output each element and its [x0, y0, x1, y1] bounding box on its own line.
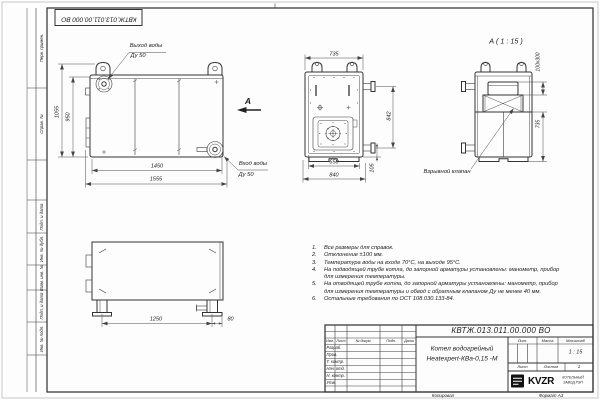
sheets-label: Листов — [544, 365, 559, 369]
footer-copied: Копировал — [432, 393, 454, 398]
front-markers — [317, 105, 351, 111]
inlet-dn-label: Ду 50 — [238, 173, 253, 179]
dim-valve-size: 100х300 — [537, 52, 542, 71]
note-item: 3.Температура воды на входе 70°С, на вых… — [311, 260, 563, 267]
product-name-line1: Котел водогрейный — [431, 347, 494, 354]
dim-width-top: 735 — [329, 52, 338, 58]
dim-edge-offset: 80 — [227, 317, 233, 323]
scale-label: Масштаб — [566, 339, 585, 343]
rear-flanges — [462, 82, 476, 154]
view-rear — [462, 62, 548, 169]
row-tkontr: Т. контр. — [327, 360, 345, 364]
side-column-label: Подп. и дата — [39, 203, 43, 230]
dim-width-overall: 840 — [329, 173, 338, 179]
dim-feet-spacing: 1250 — [150, 317, 162, 323]
dim-length-body: 1450 — [151, 164, 163, 170]
note-item: 1.Все размеры для справок. — [311, 245, 563, 252]
sheet-frame — [2, 2, 598, 398]
top-stamp-text: КВТЖ.013.011.00.000 ВО — [61, 14, 136, 21]
company-logo-mark — [511, 375, 524, 388]
explosion-valve-label: Взрывной клапан — [423, 170, 470, 176]
row-nkontr: Н. контр. — [327, 374, 345, 378]
water-inlet-valve — [197, 142, 223, 158]
section-letter: А — [245, 97, 251, 106]
side-column-label: Перв. примен. — [39, 34, 43, 63]
outlet-label: Выход воды — [130, 44, 163, 50]
dim-height-body: 950 — [66, 112, 72, 121]
side-column-label: Инв. № подл. — [39, 325, 43, 352]
dim-flange-height: 842 — [387, 111, 393, 120]
technical-notes: 1.Все размеры для справок. 2.Отклонение … — [311, 245, 563, 303]
outlet-dn-label: Ду 50 — [130, 54, 145, 60]
col-data: Дата — [404, 340, 413, 344]
row-prov: Пров. — [327, 353, 338, 357]
view-plan — [86, 242, 223, 327]
row-razrab: Разраб. — [327, 346, 342, 350]
dim-bottom: 105 — [370, 163, 376, 172]
view-front — [303, 55, 396, 183]
explosion-valve — [483, 82, 523, 112]
col-doc: № докум. — [356, 340, 372, 344]
scale-value: 1 : 15 — [569, 350, 583, 356]
burner-door — [313, 117, 357, 150]
row-utv: Утв. — [327, 380, 336, 384]
side-column-label: Справ. № — [39, 114, 43, 134]
dim-width-inner: 650 — [329, 160, 338, 166]
col-podp: Подп. — [386, 340, 396, 344]
dim-height-overall: 1055 — [55, 106, 61, 118]
note-item: 5.На отводящей трубе котла, до запорной … — [311, 281, 563, 296]
side-column-label: Взам. инв. № — [39, 264, 43, 291]
front-flanges — [363, 82, 375, 154]
product-name-line2: Heatexpert-КВа-0,15 -М — [427, 356, 498, 363]
sheet-label: Лист — [517, 365, 527, 369]
brand-line2: ЗАВОД РЭП — [563, 381, 582, 384]
drawing-sheet: КВТЖ.013.011.00.000 ВО Перв. примен. Спр… — [0, 0, 600, 400]
water-outlet-valve — [96, 76, 112, 92]
drawing-line-art — [0, 0, 600, 400]
row-nachotd: Нач. отд. — [327, 367, 345, 371]
dim-rear-height: 735 — [537, 120, 542, 128]
dim-length-overall: 1555 — [150, 177, 162, 183]
note-item: 6.Остальные требования по ОСТ 108.030.13… — [311, 296, 563, 303]
footer-format: Формат А3 — [539, 393, 564, 398]
col-list: Лист — [336, 340, 345, 344]
dim-lines-front — [303, 55, 396, 183]
sheets-value: 1 — [578, 365, 581, 370]
lit-label: Лит. — [518, 339, 527, 343]
note-item: 2.Отклонение ±100 мм. — [311, 252, 563, 259]
dim-lines-side — [58, 64, 227, 188]
rear-base — [479, 157, 528, 162]
doc-number: КВТЖ.013.011.00.000 ВО — [451, 327, 550, 335]
view-a-title: А ( 1 : 15 ) — [489, 37, 523, 44]
col-izm: Изм. — [326, 340, 334, 344]
inlet-label: Вход воды — [239, 162, 267, 168]
brand-line1: КОТЕЛЬНЫЙ — [562, 376, 583, 379]
brand-logo-text: KVZR — [528, 377, 554, 387]
side-column-label: Инв. № дубл. — [39, 236, 43, 262]
note-item: 4.На подводящей трубе котла, до запорной… — [311, 267, 563, 282]
plan-feet — [93, 300, 223, 316]
mass-label: Масса — [542, 339, 554, 343]
section-arrow-a — [237, 107, 261, 113]
side-column-label: Подп. и дата — [39, 293, 43, 320]
